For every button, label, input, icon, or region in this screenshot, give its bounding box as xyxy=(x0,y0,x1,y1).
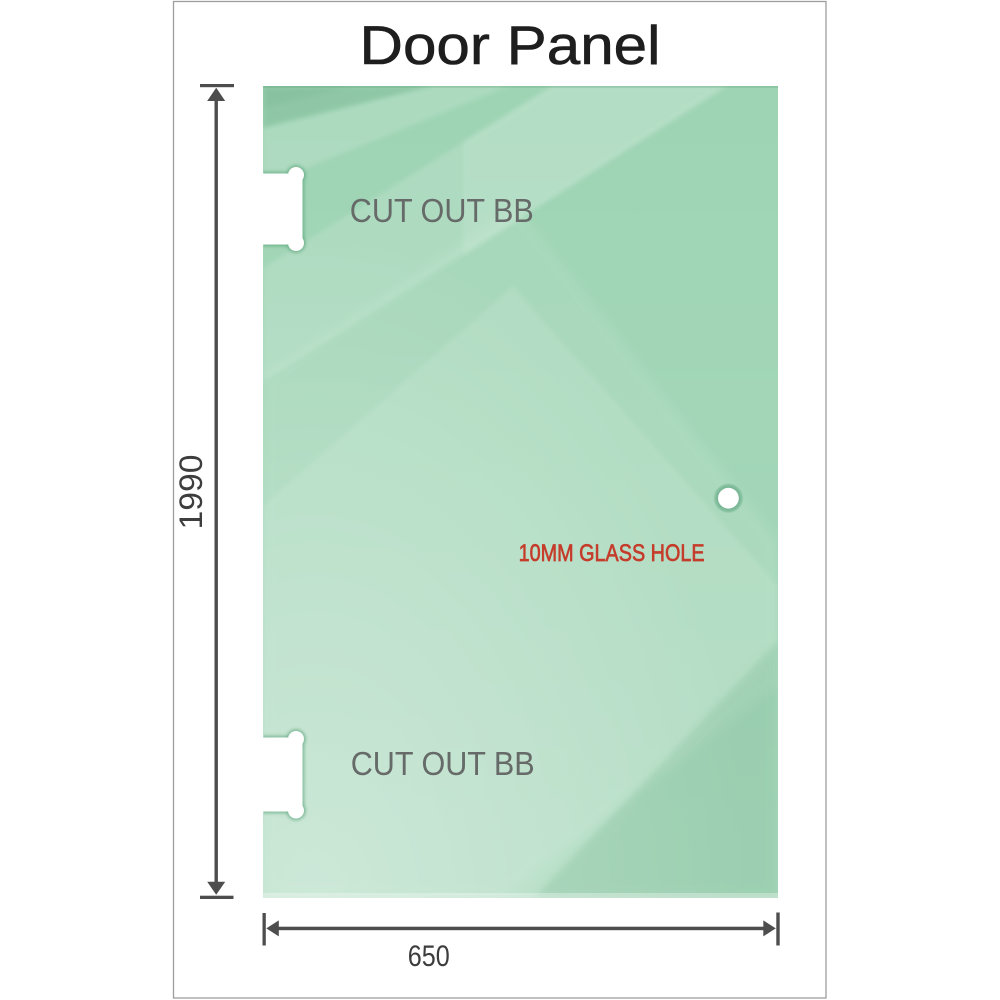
svg-text:1990: 1990 xyxy=(173,455,209,530)
svg-text:CUT OUT BB: CUT OUT BB xyxy=(350,193,534,230)
svg-text:10MM GLASS HOLE: 10MM GLASS HOLE xyxy=(519,540,705,567)
svg-text:CUT OUT BB: CUT OUT BB xyxy=(351,746,535,783)
svg-text:650: 650 xyxy=(408,940,450,973)
svg-text:Door Panel: Door Panel xyxy=(360,14,661,76)
